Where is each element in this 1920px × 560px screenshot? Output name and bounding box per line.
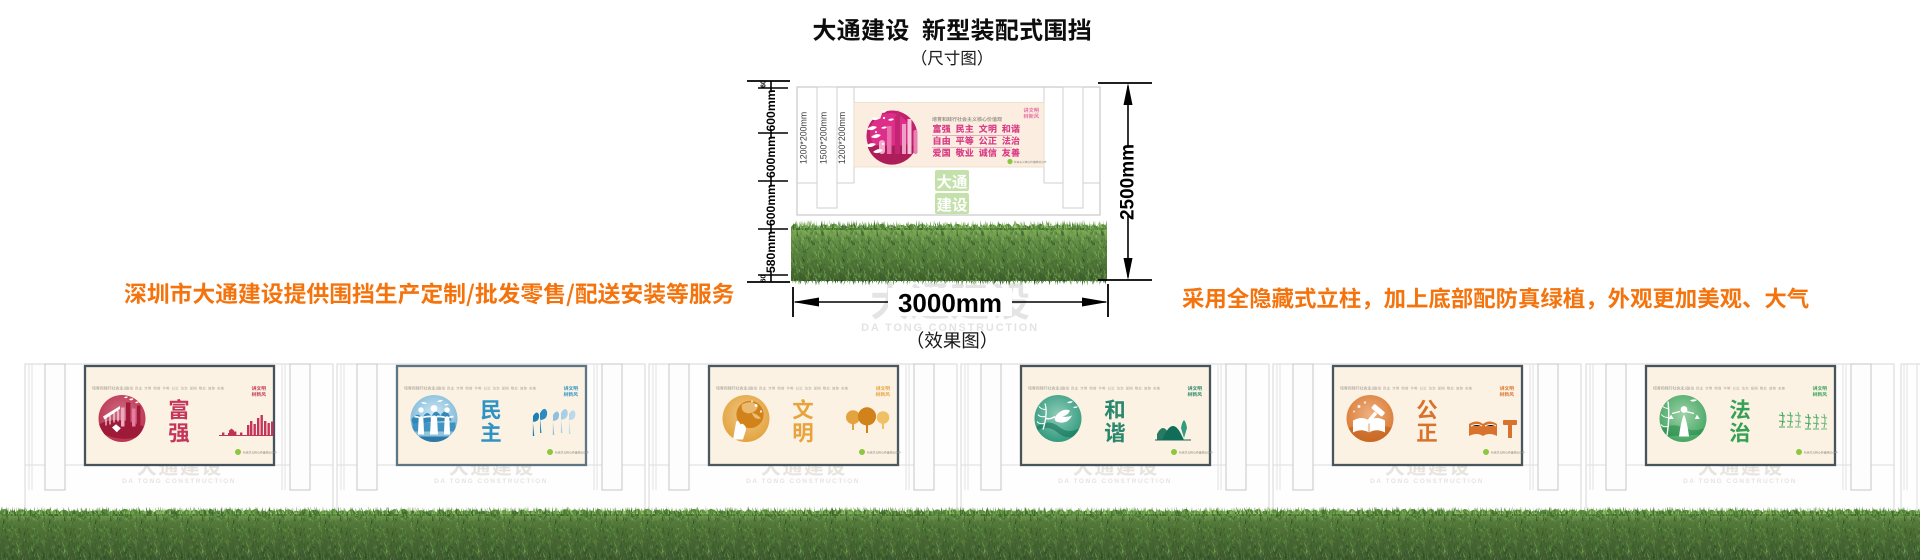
svg-text:DA TONG CONSTRUCTION: DA TONG CONSTRUCTION xyxy=(122,478,236,485)
svg-text:1200*200mm: 1200*200mm xyxy=(837,112,847,164)
svg-text:2500mm: 2500mm xyxy=(1118,144,1139,220)
svg-text:600mm: 600mm xyxy=(764,184,778,226)
svg-text:580mm: 580mm xyxy=(764,231,778,273)
svg-text:DA TONG CONSTRUCTION: DA TONG CONSTRUCTION xyxy=(1683,478,1797,485)
svg-text:600mm: 600mm xyxy=(764,89,778,131)
svg-text:DA TONG CONSTRUCTION: DA TONG CONSTRUCTION xyxy=(434,478,548,485)
svg-text:1500*200mm: 1500*200mm xyxy=(819,112,829,164)
svg-text:DA TONG CONSTRUCTION: DA TONG CONSTRUCTION xyxy=(746,478,860,485)
svg-text:600mm: 600mm xyxy=(764,136,778,178)
svg-text:DA TONG CONSTRUCTION: DA TONG CONSTRUCTION xyxy=(1058,478,1172,485)
svg-text:3000mm: 3000mm xyxy=(898,288,1002,318)
svg-text:DA TONG CONSTRUCTION: DA TONG CONSTRUCTION xyxy=(1370,478,1484,485)
svg-text:1200*200mm: 1200*200mm xyxy=(799,112,809,164)
svg-text:DA TONG CONSTRUCTION: DA TONG CONSTRUCTION xyxy=(861,322,1039,334)
